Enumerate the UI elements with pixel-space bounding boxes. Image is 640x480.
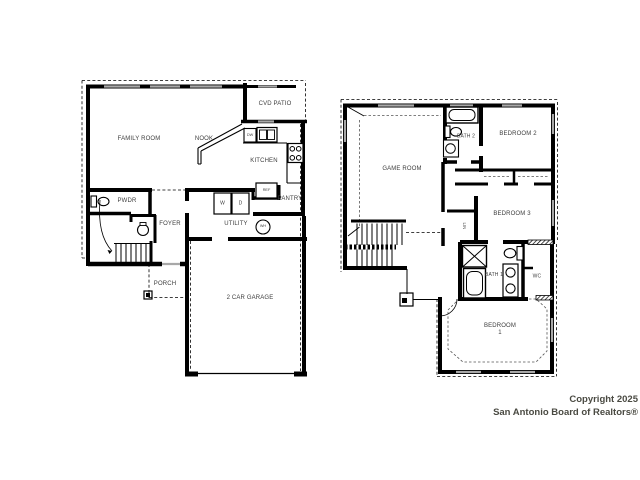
label-pwdr: PWDR: [118, 198, 137, 204]
label-water-heater: WH: [260, 225, 266, 229]
label-dishwasher: DW: [247, 134, 253, 138]
label-bedroom-2: BEDROOM 2: [499, 131, 536, 137]
label-bath-2: BATH 2: [457, 135, 475, 140]
label-dryer: D: [239, 201, 243, 206]
label-bedroom-1: BEDROOM 1: [482, 323, 518, 337]
label-ref: REF: [263, 189, 271, 193]
watermark-line1: Copyright 2025: [493, 394, 638, 407]
label-foyer: FOYER: [159, 221, 180, 227]
label-game-room: GAME ROOM: [382, 166, 421, 172]
label-nook: NOOK: [195, 136, 213, 142]
label-utility: UTILITY: [224, 221, 247, 227]
label-family-room: FAMILY ROOM: [118, 136, 161, 142]
watermark: Copyright 2025 San Antonio Board of Real…: [493, 394, 638, 419]
label-linen: LIN: [462, 223, 466, 230]
label-wc: WC: [533, 275, 542, 280]
floor-plan-canvas: FAMILY ROOM NOOK CVD PATIO KITCHEN PWDR …: [0, 0, 640, 480]
watermark-line2: San Antonio Board of Realtors®: [493, 407, 638, 420]
label-cvd-patio: CVD PATIO: [259, 101, 292, 107]
label-bedroom-3: BEDROOM 3: [493, 211, 530, 217]
label-washer: W: [220, 201, 225, 206]
label-garage: 2 CAR GARAGE: [227, 295, 274, 301]
label-porch: PORCH: [154, 281, 176, 287]
label-kitchen: KITCHEN: [250, 158, 277, 164]
label-bath-1: BATH 1: [483, 272, 505, 278]
label-pantry: PANTRY: [278, 196, 303, 202]
